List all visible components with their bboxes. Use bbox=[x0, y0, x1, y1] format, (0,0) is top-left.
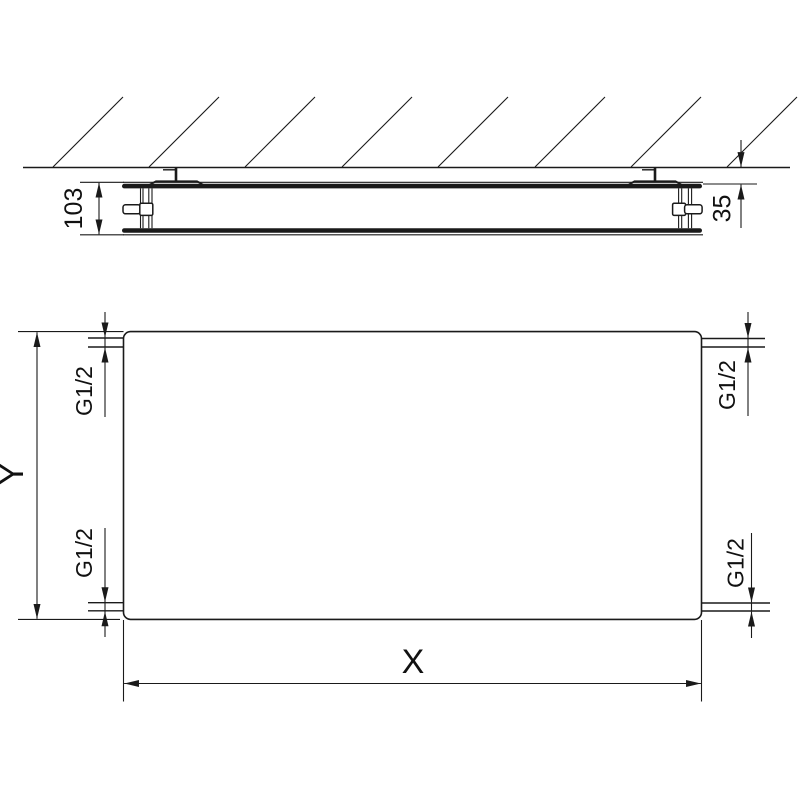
dimension-wall-distance-label: 35 bbox=[709, 195, 737, 223]
dimension-wall-distance: 35 bbox=[703, 140, 757, 228]
connection-stub-left bbox=[123, 205, 141, 214]
connection-label-bottom-right: G1/2 bbox=[723, 538, 749, 588]
dimension-depth: 103 bbox=[60, 182, 124, 235]
dimension-width-label: X bbox=[402, 643, 425, 681]
dimension-height-label: Y bbox=[0, 463, 31, 486]
dimension-connection-bottom-left: G1/2 bbox=[71, 528, 105, 637]
connection-label-bottom-left: G1/2 bbox=[71, 528, 97, 578]
dimension-connection-bottom-right: G1/2 bbox=[723, 533, 752, 638]
connection-label-top-left: G1/2 bbox=[71, 366, 97, 416]
radiator-section bbox=[122, 182, 703, 235]
back-panel-bar bbox=[122, 184, 702, 189]
stub-top-right bbox=[702, 339, 766, 348]
dimension-depth-label: 103 bbox=[60, 188, 88, 230]
wall-hatching bbox=[53, 97, 797, 167]
connection-label-top-right: G1/2 bbox=[714, 360, 740, 410]
radiator-front-outline bbox=[124, 332, 702, 620]
front-panel-bar bbox=[122, 228, 702, 233]
connection-nut-left bbox=[140, 203, 153, 215]
stub-top-left bbox=[88, 338, 124, 347]
dimension-connection-top-left: G1/2 bbox=[71, 312, 105, 417]
side-view: 103 35 bbox=[23, 97, 797, 235]
stub-bottom-right bbox=[702, 603, 771, 611]
end-cap-left bbox=[123, 188, 153, 228]
end-cap-right bbox=[673, 188, 703, 228]
dimension-connection-top-right: G1/2 bbox=[714, 312, 748, 416]
radiator-dimension-drawing: 103 35 bbox=[0, 0, 800, 800]
stub-bottom-left bbox=[88, 603, 124, 611]
connection-nut-right bbox=[673, 203, 686, 215]
front-view: G1/2 G1/2 G1/2 G1/2 Y bbox=[0, 312, 770, 702]
connection-stub-right bbox=[685, 205, 703, 214]
dimension-width: X bbox=[124, 620, 702, 702]
